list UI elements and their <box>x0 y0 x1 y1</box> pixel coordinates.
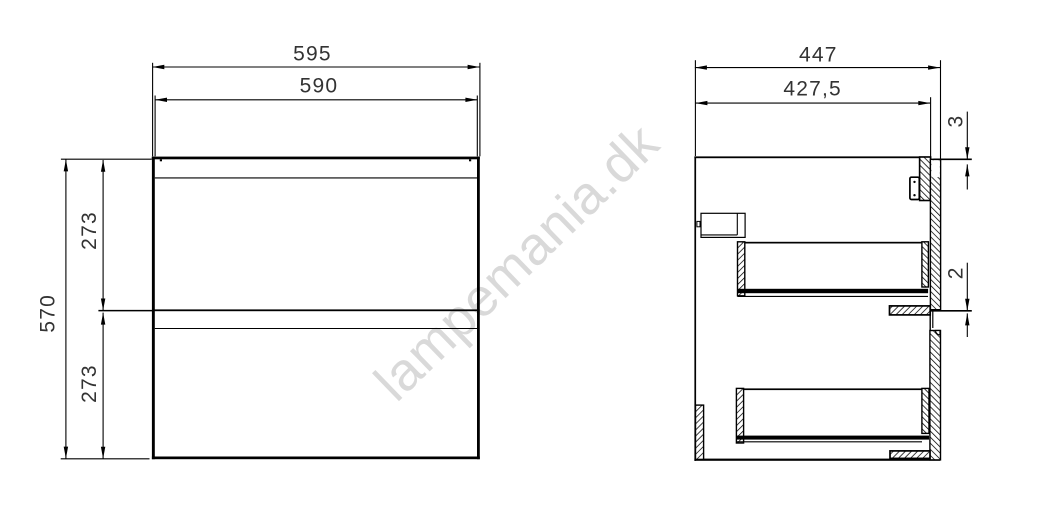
svg-text:3: 3 <box>945 115 968 128</box>
svg-text:447: 447 <box>799 44 838 67</box>
svg-text:273: 273 <box>78 364 101 403</box>
svg-text:427,5: 427,5 <box>783 77 842 100</box>
svg-text:570: 570 <box>37 294 60 333</box>
svg-text:2: 2 <box>945 266 968 279</box>
svg-text:590: 590 <box>300 75 339 98</box>
svg-text:595: 595 <box>293 43 332 66</box>
svg-text:273: 273 <box>78 211 101 250</box>
